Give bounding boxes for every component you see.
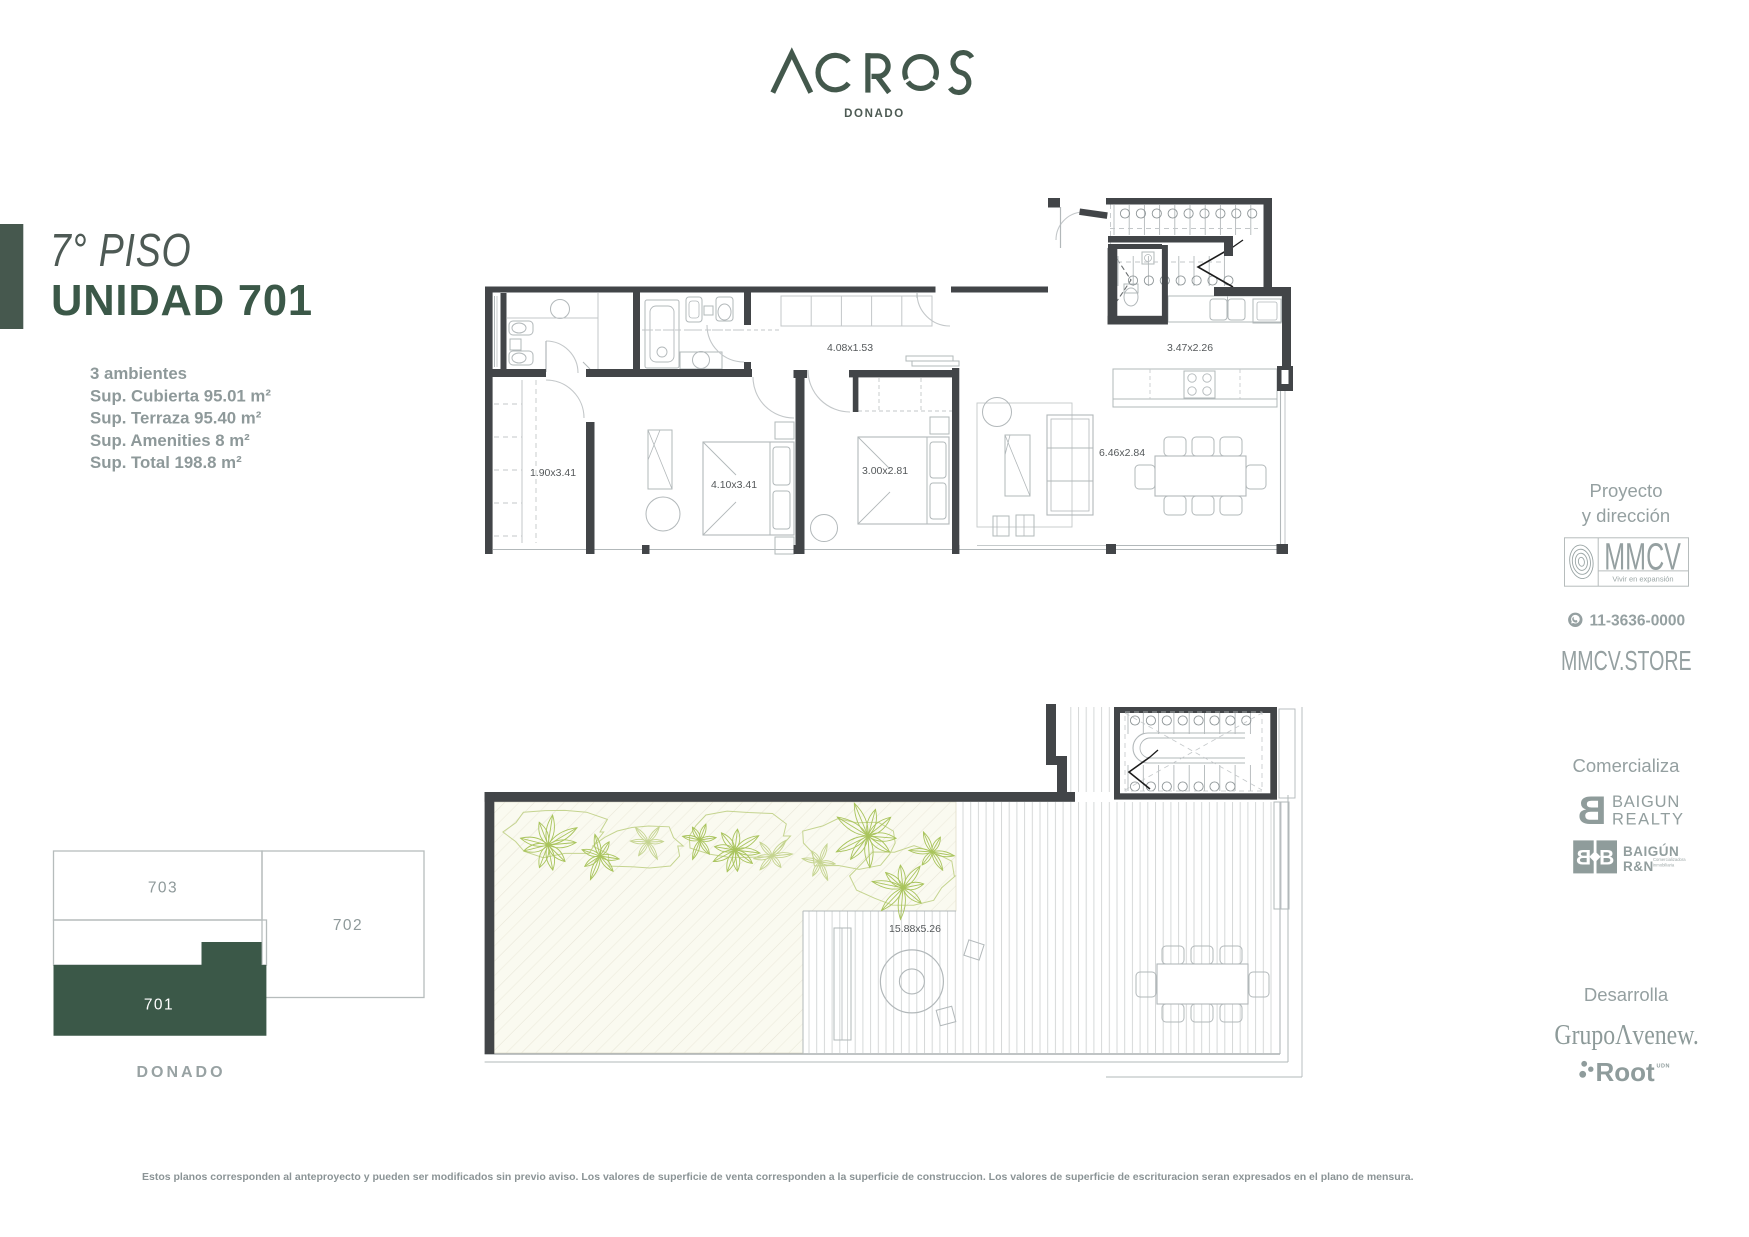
svg-text:GrupoΛvenew.: GrupoΛvenew. (1554, 1018, 1698, 1051)
svg-text:UNIDAD 701: UNIDAD 701 (51, 277, 313, 325)
svg-text:DONADO: DONADO (136, 1064, 225, 1081)
svg-text:B: B (1599, 847, 1614, 870)
svg-text:Vivir en expansión: Vivir en expansión (1612, 575, 1673, 584)
svg-text:Comercializa: Comercializa (1573, 755, 1681, 776)
svg-text:BAIGUN: BAIGUN (1612, 793, 1680, 811)
svg-text:R&N: R&N (1623, 859, 1654, 874)
svg-text:3.00x2.81: 3.00x2.81 (862, 465, 908, 477)
svg-text:701: 701 (144, 997, 174, 1014)
svg-text:B: B (1576, 847, 1591, 870)
svg-text:inmobiliaria: inmobiliaria (1653, 863, 1675, 868)
svg-text:702: 702 (333, 917, 363, 934)
svg-text:Proyecto: Proyecto (1589, 480, 1662, 501)
svg-text:UDN: UDN (1657, 1064, 1670, 1070)
svg-text:Estos planos corresponden al a: Estos planos corresponden al anteproyect… (142, 1171, 1414, 1183)
svg-text:Sup. Amenities 8 m²: Sup. Amenities 8 m² (90, 431, 250, 450)
svg-text:Comercializadora: Comercializadora (1653, 857, 1686, 862)
svg-text:703: 703 (148, 880, 178, 897)
svg-text:15.88x5.26: 15.88x5.26 (889, 923, 941, 935)
svg-text:Sup. Terraza 95.40 m²: Sup. Terraza 95.40 m² (90, 409, 262, 428)
svg-text:MMCV: MMCV (1604, 535, 1681, 577)
svg-text:Sup. Total 198.8 m²: Sup. Total 198.8 m² (90, 453, 242, 472)
svg-text:y dirección: y dirección (1582, 505, 1670, 526)
svg-text:DONADO: DONADO (844, 108, 905, 120)
svg-text:Root: Root (1596, 1057, 1656, 1087)
svg-text:4.08x1.53: 4.08x1.53 (827, 342, 873, 354)
svg-text:B: B (1578, 789, 1607, 833)
svg-text:7° PISO: 7° PISO (50, 224, 192, 276)
svg-text:1.90x3.41: 1.90x3.41 (530, 467, 576, 479)
svg-text:Sup. Cubierta 95.01 m²: Sup. Cubierta 95.01 m² (90, 386, 271, 405)
svg-text:Desarrolla: Desarrolla (1584, 984, 1669, 1005)
svg-text:4.10x3.41: 4.10x3.41 (711, 479, 757, 491)
svg-text:MMCV.STORE: MMCV.STORE (1561, 646, 1692, 677)
svg-text:3 ambientes: 3 ambientes (90, 364, 187, 383)
svg-text:REALTY: REALTY (1612, 811, 1685, 829)
svg-text:6.46x2.84: 6.46x2.84 (1099, 447, 1145, 459)
svg-text:3.47x2.26: 3.47x2.26 (1167, 342, 1213, 354)
svg-text:11-3636-0000: 11-3636-0000 (1590, 613, 1686, 630)
